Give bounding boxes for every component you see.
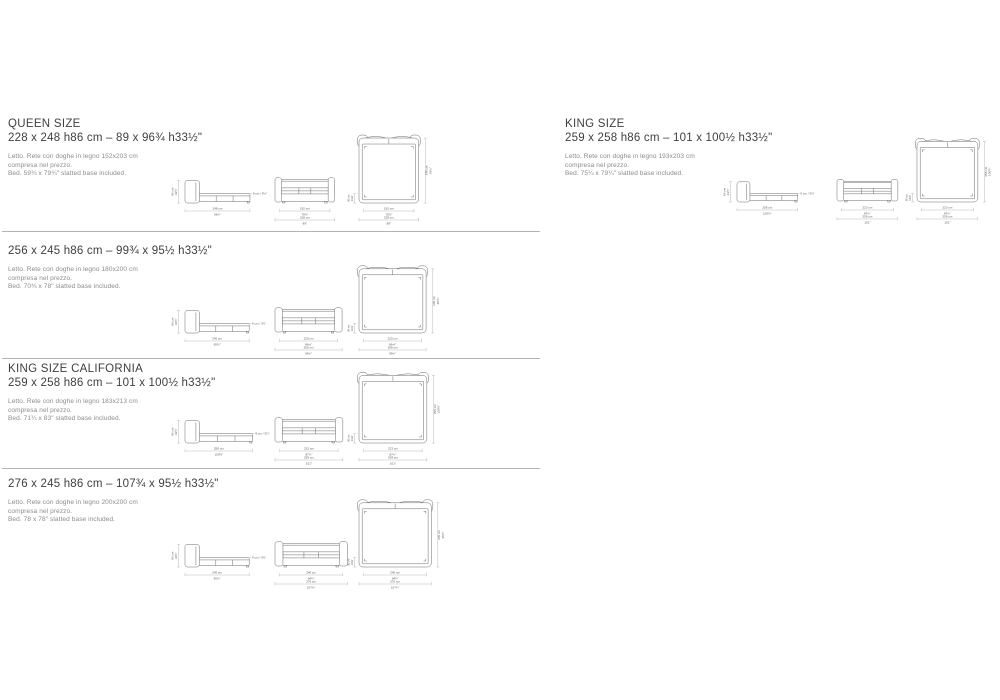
svg-text:14⅛": 14⅛"	[350, 559, 354, 565]
svg-text:223 cm: 223 cm	[388, 447, 398, 451]
svg-text:9 cm / 3½": 9 cm / 3½"	[255, 432, 269, 436]
svg-text:258 cm: 258 cm	[762, 206, 772, 210]
king-276-technical-drawing: 9 cm / 3½"86 cm33½"245 cm95½"240 cm94½"2…	[175, 482, 475, 594]
section-divider	[2, 231, 540, 232]
spec-sheet-page: QUEEN SIZE 228 x 248 h86 cm – 89 x 96¾ h…	[0, 0, 1000, 700]
svg-text:192 cm: 192 cm	[384, 207, 394, 211]
svg-text:107¾": 107¾"	[307, 585, 316, 589]
section-queen: QUEEN SIZE 228 x 248 h86 cm – 89 x 96¾ h…	[8, 118, 202, 179]
svg-text:259 cm: 259 cm	[863, 215, 873, 219]
svg-text:95½": 95½"	[436, 297, 440, 304]
svg-text:101": 101"	[306, 461, 312, 465]
queen-technical-drawing: 9 cm / 3½"86 cm33½"248 cm96¾"192 cm75½"2…	[175, 118, 475, 230]
svg-text:101": 101"	[944, 220, 950, 224]
svg-text:220 cm: 220 cm	[304, 337, 314, 341]
svg-text:9 cm / 3½": 9 cm / 3½"	[253, 192, 267, 196]
svg-text:256 cm: 256 cm	[388, 346, 398, 350]
svg-text:95½": 95½"	[214, 342, 221, 346]
svg-text:101": 101"	[390, 461, 396, 465]
svg-text:223 cm: 223 cm	[304, 447, 314, 451]
king-california-technical-drawing: 9 cm / 3½"86 cm33½"258 cm100½"223 cm87¾"…	[175, 358, 475, 470]
svg-text:107¾": 107¾"	[391, 585, 400, 589]
svg-text:14⅛": 14⅛"	[350, 435, 354, 441]
desc-line: Letto. Rete con doghe in legno 152x203 c…	[8, 153, 202, 162]
svg-text:100½": 100½"	[215, 452, 224, 456]
svg-text:89": 89"	[387, 221, 391, 225]
king-technical-drawing: 9 cm / 3½"86 cm33½"258 cm100½"223 cm87¾"…	[552, 118, 998, 230]
svg-text:95½": 95½"	[214, 576, 221, 580]
svg-text:101": 101"	[864, 220, 870, 224]
svg-text:9 cm / 3½": 9 cm / 3½"	[800, 192, 814, 196]
desc-line: Bed. 59¾ x 79¾" slatted base included.	[8, 170, 202, 179]
svg-text:228 cm: 228 cm	[300, 216, 310, 220]
svg-text:36 cm: 36 cm	[347, 435, 351, 442]
section-queen-description: Letto. Rete con doghe in legno 152x203 c…	[8, 153, 202, 179]
svg-text:9 cm / 3½": 9 cm / 3½"	[252, 322, 266, 326]
svg-text:36 cm: 36 cm	[347, 325, 351, 332]
svg-text:33½": 33½"	[174, 318, 178, 325]
section-queen-title: QUEEN SIZE	[8, 118, 202, 131]
svg-text:258 cm: 258 cm	[214, 447, 224, 451]
svg-text:14⅛": 14⅛"	[908, 195, 912, 201]
svg-text:33½": 33½"	[174, 552, 178, 559]
svg-text:33½": 33½"	[174, 428, 178, 435]
desc-line: compresa nel prezzo.	[8, 162, 202, 171]
svg-text:192 cm: 192 cm	[300, 207, 310, 211]
svg-text:240 cm: 240 cm	[306, 571, 316, 575]
svg-text:223 cm: 223 cm	[943, 206, 953, 210]
svg-text:33½": 33½"	[174, 188, 178, 195]
svg-text:248 cm: 248 cm	[213, 207, 223, 211]
svg-text:100½": 100½"	[437, 405, 441, 414]
svg-text:259 cm: 259 cm	[943, 215, 953, 219]
svg-text:95½": 95½"	[441, 531, 445, 538]
svg-text:14⅛": 14⅛"	[350, 195, 354, 201]
section-divider	[2, 468, 540, 469]
svg-text:256 cm: 256 cm	[304, 346, 314, 350]
svg-text:245 cm: 245 cm	[212, 571, 222, 575]
svg-text:14⅛": 14⅛"	[350, 325, 354, 331]
svg-text:240 cm: 240 cm	[390, 571, 400, 575]
svg-text:89": 89"	[303, 221, 307, 225]
svg-text:220 cm: 220 cm	[388, 337, 398, 341]
svg-text:100½": 100½"	[763, 211, 772, 215]
svg-text:245 cm: 245 cm	[212, 337, 222, 341]
svg-text:228 cm: 228 cm	[384, 216, 394, 220]
svg-text:259 cm: 259 cm	[304, 456, 314, 460]
svg-text:276 cm: 276 cm	[390, 580, 400, 584]
svg-text:36 cm: 36 cm	[905, 194, 909, 201]
svg-text:276 cm: 276 cm	[306, 580, 316, 584]
svg-text:259 cm: 259 cm	[388, 456, 398, 460]
svg-text:100½": 100½"	[988, 167, 992, 176]
svg-text:96¾": 96¾"	[214, 212, 221, 216]
svg-text:36 cm: 36 cm	[347, 195, 351, 202]
svg-text:36 cm: 36 cm	[347, 559, 351, 566]
svg-text:96¾": 96¾"	[428, 167, 432, 174]
svg-text:33½": 33½"	[726, 188, 730, 195]
queen-256-technical-drawing: 9 cm / 3½"86 cm33½"245 cm95½"220 cm86⅝"2…	[175, 248, 475, 360]
svg-text:99¾": 99¾"	[389, 351, 396, 355]
svg-text:9 cm / 3½": 9 cm / 3½"	[252, 556, 266, 560]
svg-text:99¾": 99¾"	[305, 351, 312, 355]
section-queen-dimensions: 228 x 248 h86 cm – 89 x 96¾ h33½"	[8, 132, 202, 145]
svg-text:223 cm: 223 cm	[863, 206, 873, 210]
